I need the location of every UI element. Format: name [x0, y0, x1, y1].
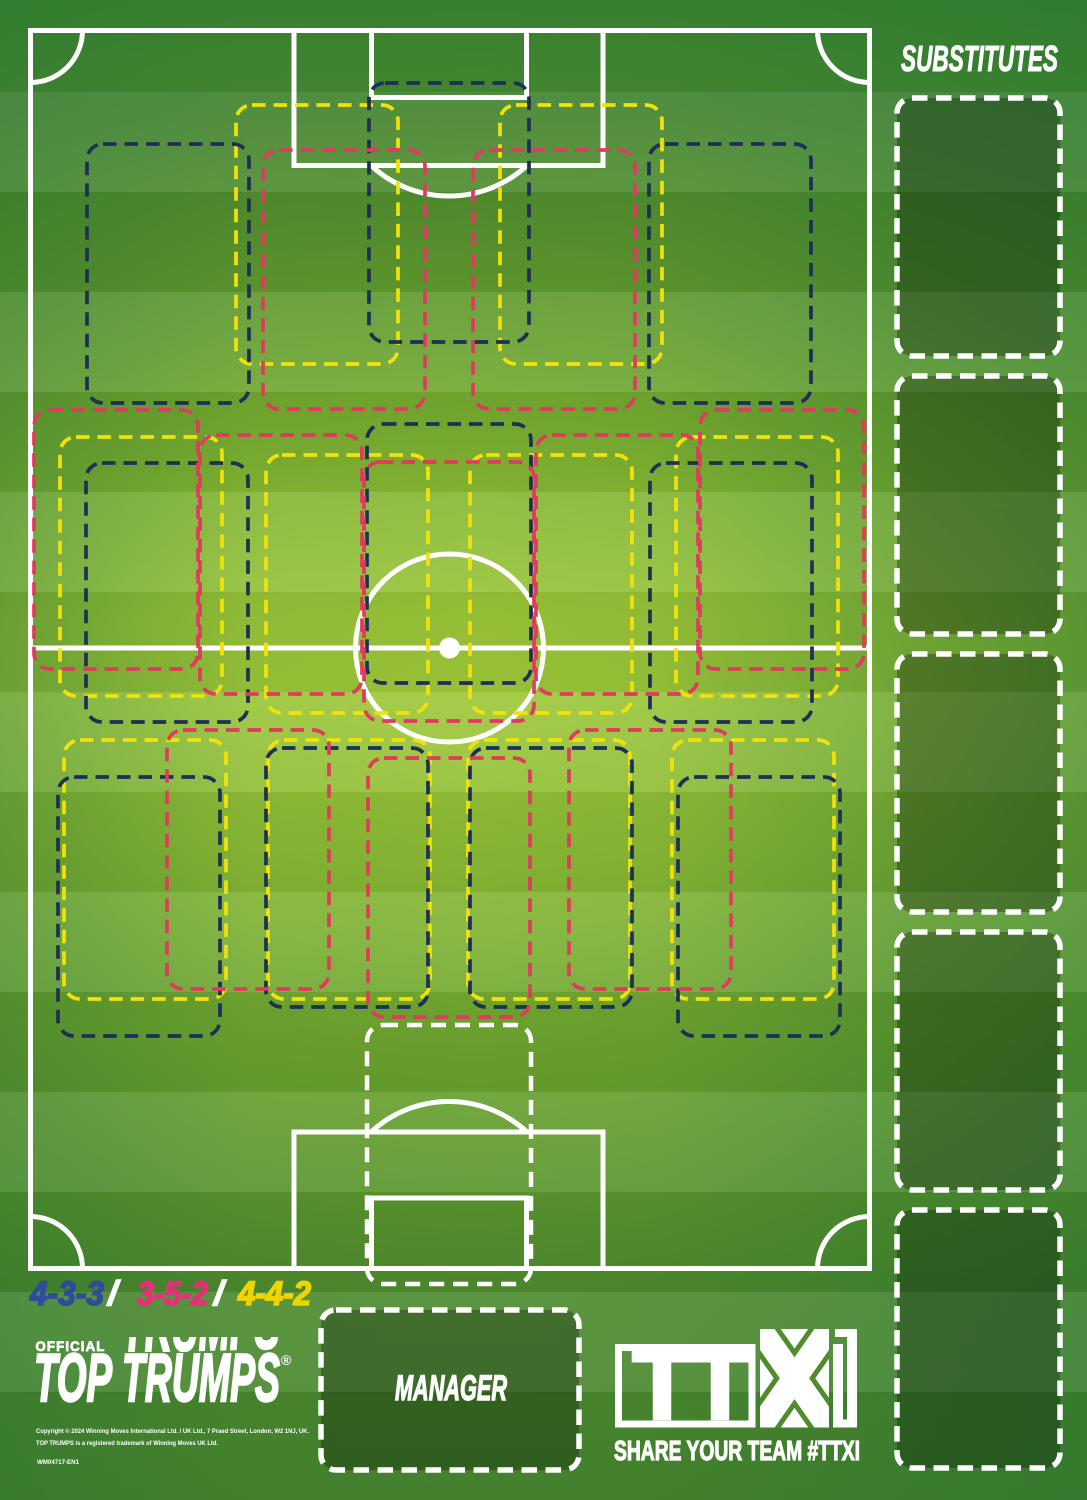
svg-text:4-4-2: 4-4-2: [237, 1275, 311, 1313]
svg-text:TT: TT: [633, 1328, 749, 1440]
svg-text:4-3-3: 4-3-3: [29, 1275, 104, 1313]
svg-text:WM04717-EN1: WM04717-EN1: [37, 1459, 80, 1466]
svg-text:TOP TRUMPS is a registered tra: TOP TRUMPS is a registered trademark of …: [36, 1440, 218, 1447]
svg-text:Copyright © 2024 Winning Moves: Copyright © 2024 Winning Moves Internati…: [36, 1428, 309, 1435]
svg-text:TRUMPS: TRUMPS: [122, 1340, 280, 1416]
svg-text:SHARE YOUR TEAM #TTXI: SHARE YOUR TEAM #TTXI: [614, 1435, 860, 1466]
svg-text:MANAGER: MANAGER: [395, 1369, 507, 1408]
svg-text:3-5-2: 3-5-2: [137, 1275, 208, 1313]
svg-text:®: ®: [281, 1352, 292, 1368]
svg-text:TOP: TOP: [34, 1340, 112, 1416]
svg-text:SUBSTITUTES: SUBSTITUTES: [901, 38, 1058, 79]
